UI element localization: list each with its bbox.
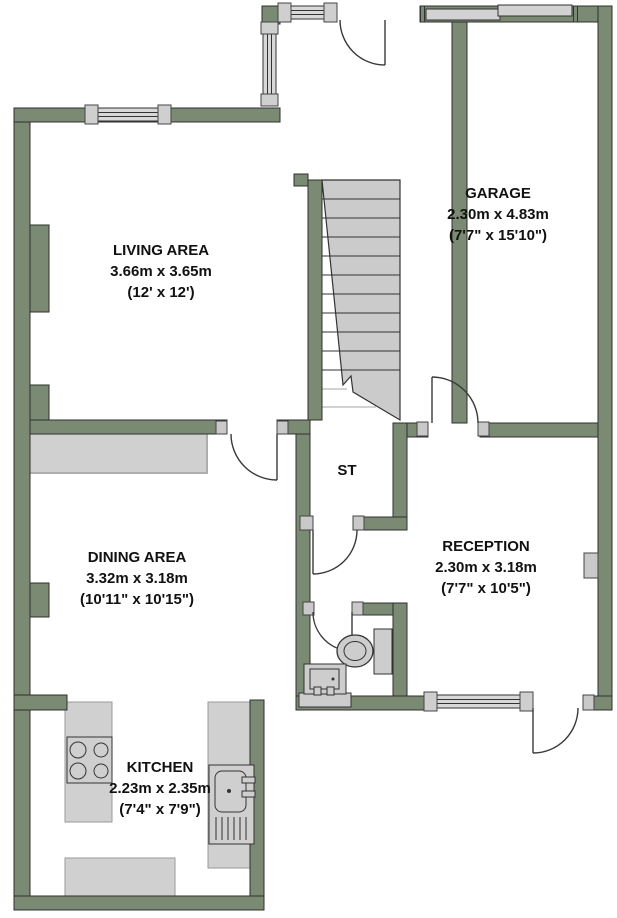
wall-dining-stub [14, 695, 67, 710]
chimney-bump-living-1 [30, 225, 49, 312]
room-name: DINING AREA [80, 547, 194, 568]
room-size-imperial: (10'11" x 10'15") [80, 589, 194, 610]
wall-porch-post [262, 6, 280, 24]
room-name: LIVING AREA [110, 240, 212, 261]
chimney-bump-living-2 [30, 385, 49, 420]
wall-st-right [393, 423, 407, 530]
hob [67, 737, 112, 783]
room-size-imperial: (7'7" x 10'5") [435, 578, 537, 599]
room-size-metric: 2.30m x 4.83m [447, 204, 549, 225]
window-porch-top [278, 3, 337, 22]
room-size-metric: 3.66m x 3.65m [110, 261, 212, 282]
wall-stair-stub [294, 174, 308, 186]
room-label-living-area: LIVING AREA 3.66m x 3.65m (12' x 12') [110, 240, 212, 303]
kitchen-sink [209, 765, 255, 844]
built-in-unit-dining [18, 432, 207, 473]
wall-kitchen-bottom [14, 896, 264, 910]
wall-right-outer [598, 6, 612, 710]
floor-plan-drawing [0, 0, 617, 918]
room-size-metric: 2.23m x 2.35m [109, 778, 211, 799]
room-name: GARAGE [447, 183, 549, 204]
wall-left-outer [14, 108, 30, 910]
radiator-reception [584, 553, 598, 578]
room-label-garage: GARAGE 2.30m x 4.83m (7'7" x 15'10") [447, 183, 549, 246]
wall-reception-top-b [480, 423, 598, 437]
room-size-metric: 2.30m x 3.18m [435, 557, 537, 578]
floor-plan: LIVING AREA 3.66m x 3.65m (12' x 12') GA… [0, 0, 617, 918]
window-reception-bottom [424, 692, 533, 711]
wall-living-bottom-a [30, 420, 227, 434]
room-name: RECEPTION [435, 536, 537, 557]
wash-basin [299, 664, 351, 707]
room-label-kitchen: KITCHEN 2.23m x 2.35m (7'4" x 7'9") [109, 757, 211, 820]
room-size-imperial: (7'4" x 7'9") [109, 799, 211, 820]
door-front [340, 20, 385, 65]
room-name: ST [337, 460, 356, 481]
staircase [322, 180, 400, 420]
door-living-dining [231, 434, 277, 480]
window-porch-left [261, 22, 278, 106]
room-size-imperial: (7'7" x 15'10") [447, 225, 549, 246]
wall-wc-right [393, 603, 407, 710]
window-living-top [85, 105, 171, 124]
room-label-storage: ST [337, 460, 356, 481]
wall-stairs-left [308, 180, 322, 420]
room-label-reception: RECEPTION 2.30m x 3.18m (7'7" x 10'5") [435, 536, 537, 599]
room-label-dining-area: DINING AREA 3.32m x 3.18m (10'11" x 10'1… [80, 547, 194, 610]
room-name: KITCHEN [109, 757, 211, 778]
chimney-bump-dining [30, 583, 49, 617]
door-reception-garden [533, 708, 578, 753]
door-storage [313, 530, 357, 574]
room-size-metric: 3.32m x 3.18m [80, 568, 194, 589]
room-size-imperial: (12' x 12') [110, 282, 212, 303]
